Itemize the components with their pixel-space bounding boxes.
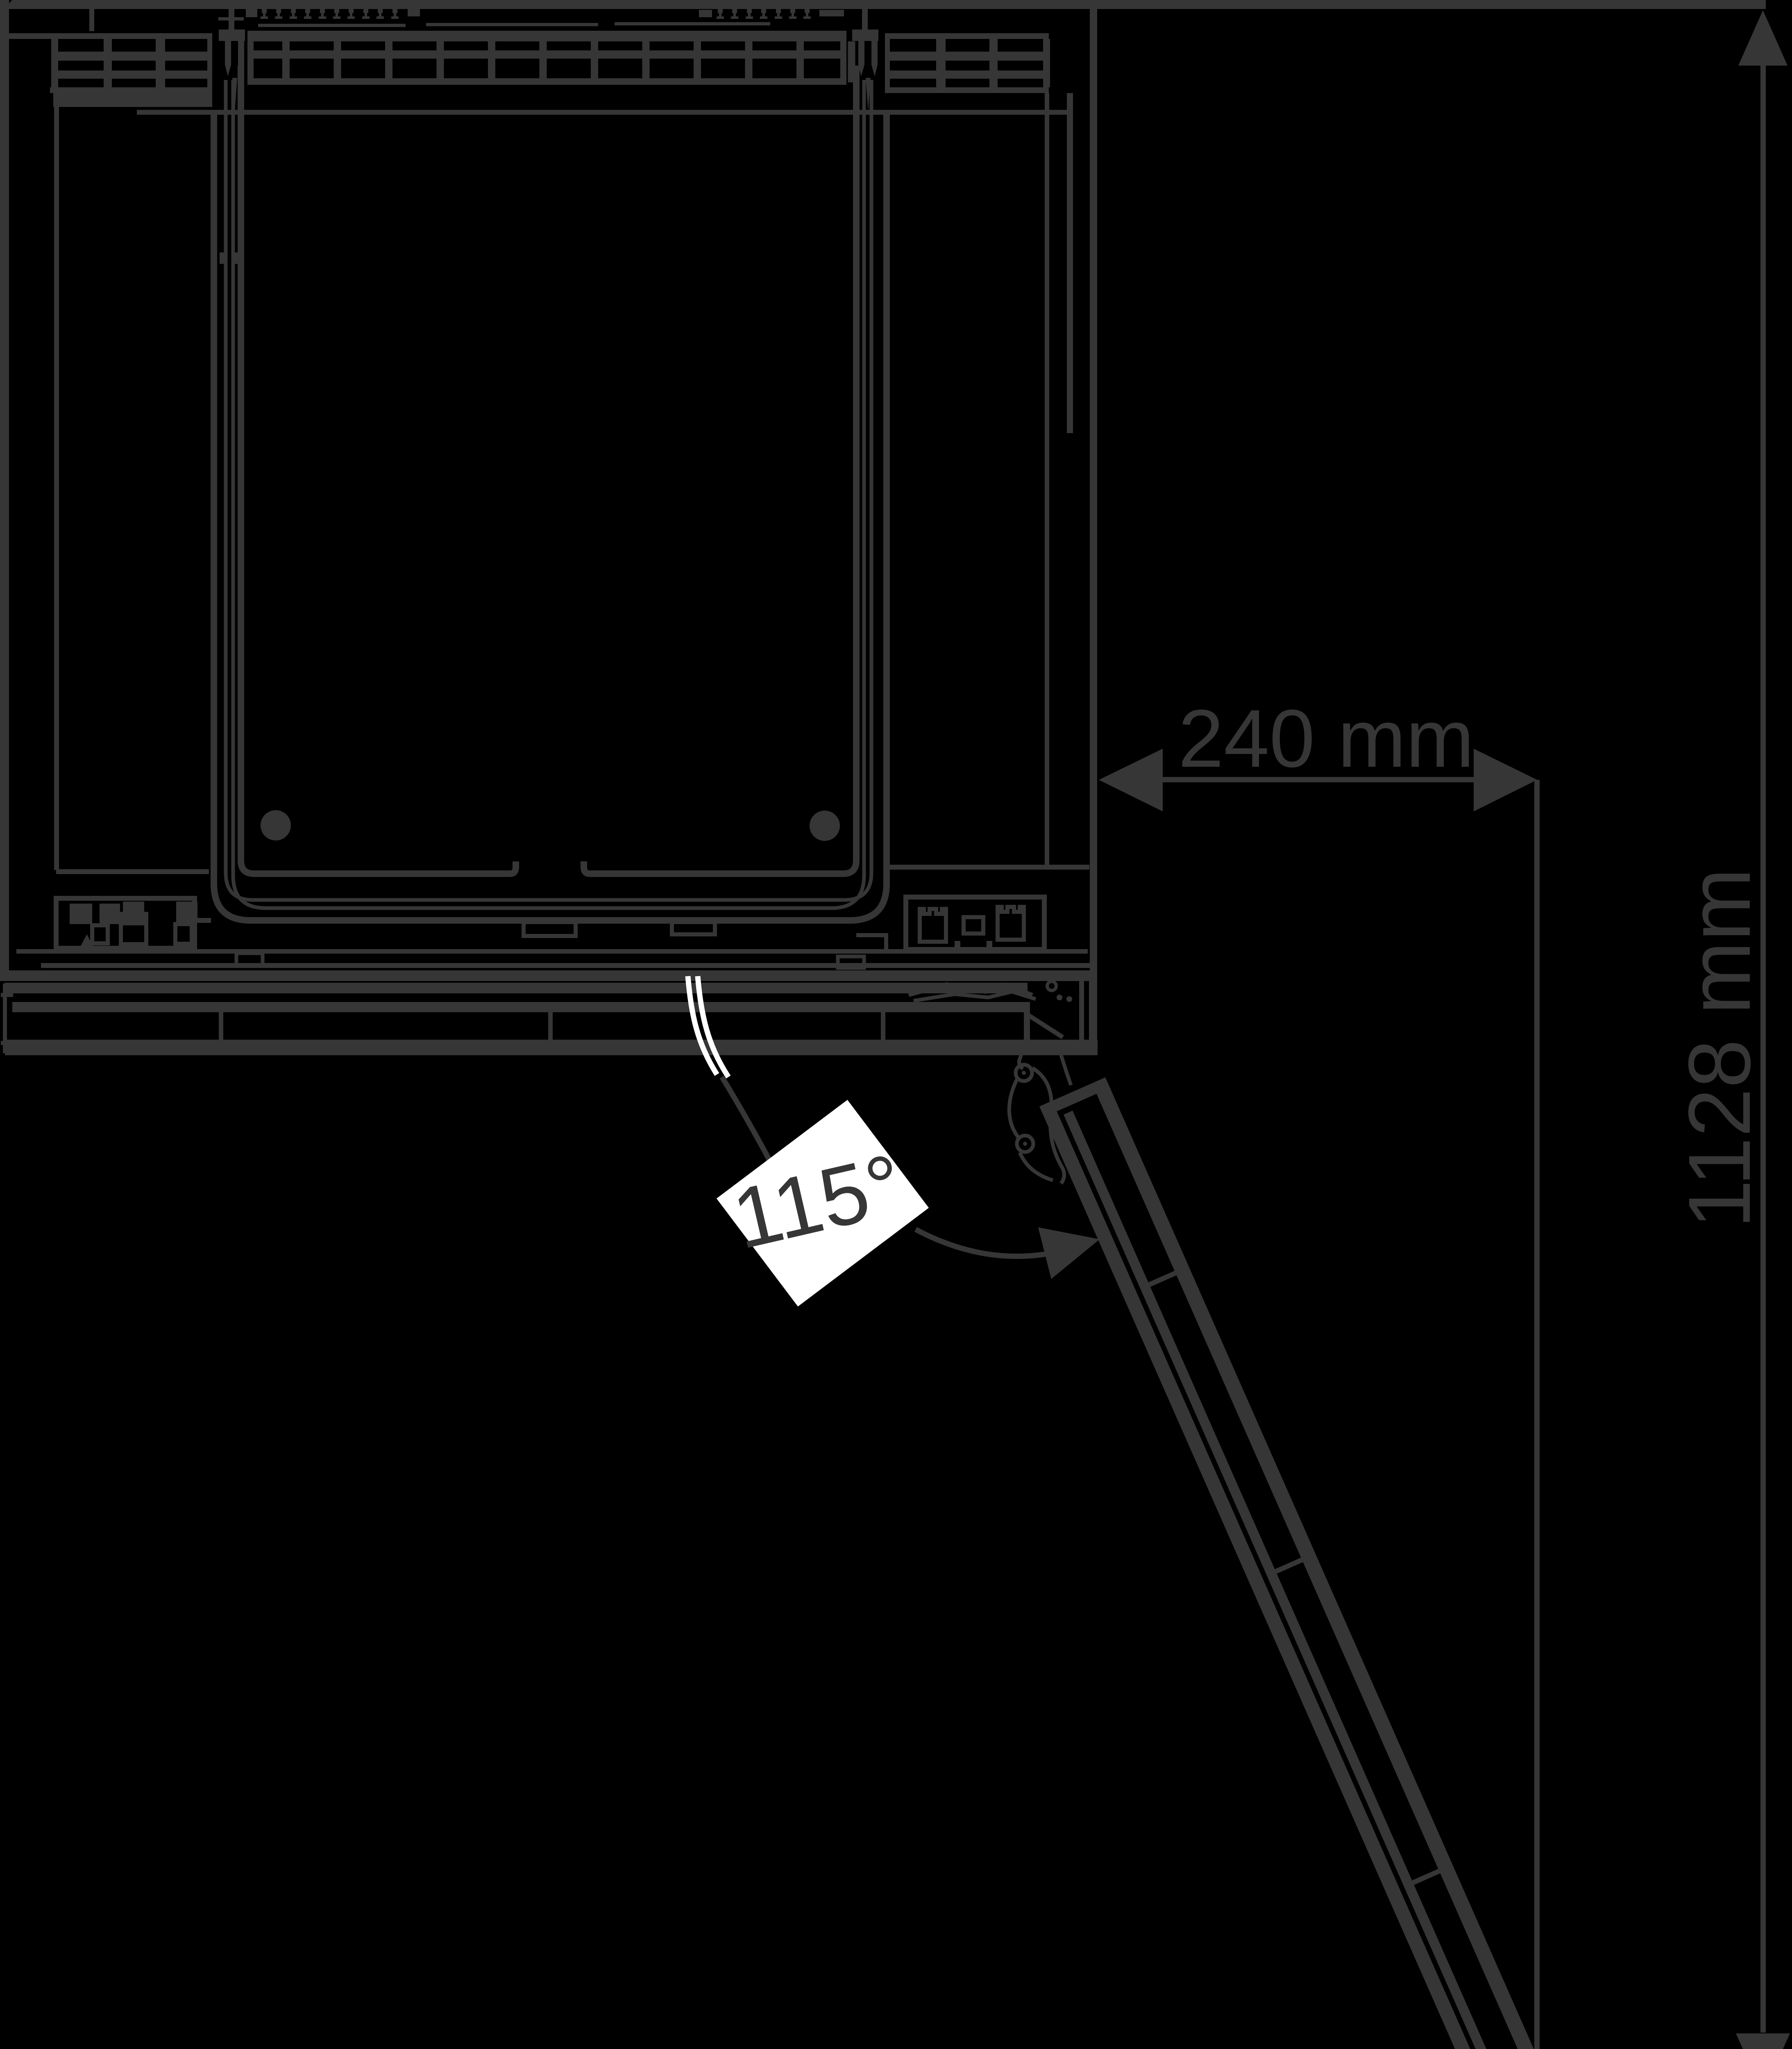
svg-text:240 mm: 240 mm: [1178, 693, 1474, 784]
svg-text:1128 mm: 1128 mm: [1670, 868, 1769, 1229]
